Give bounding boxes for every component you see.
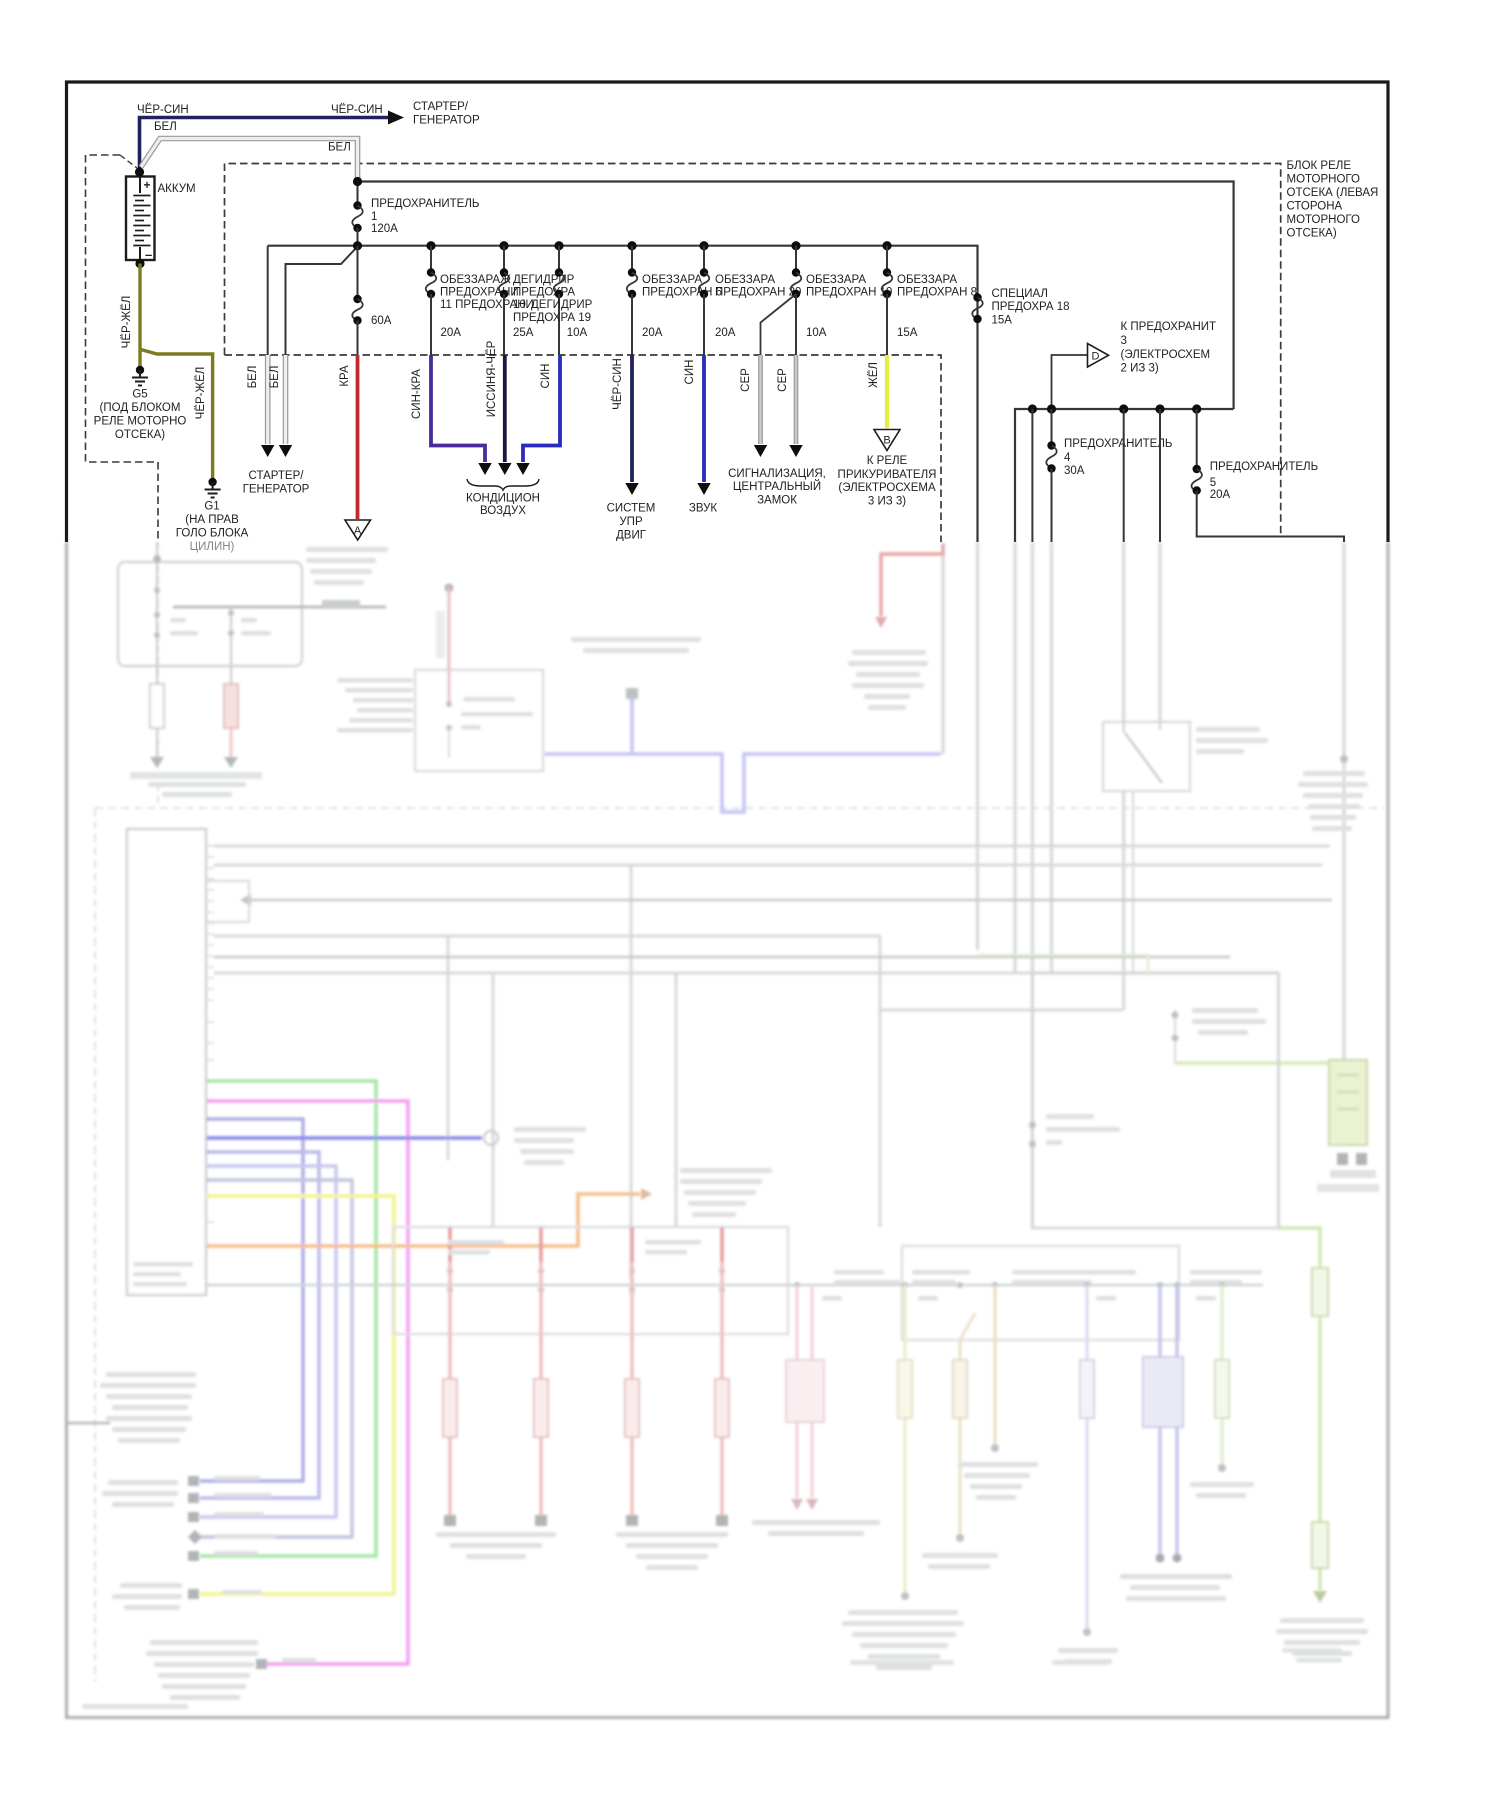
svg-text:АККУМ: АККУМ <box>158 183 196 195</box>
svg-text:ЖЁЛ: ЖЁЛ <box>868 362 880 388</box>
svg-text:10А: 10А <box>806 327 827 339</box>
svg-text:5: 5 <box>1210 477 1216 489</box>
svg-text:2 ИЗ 3): 2 ИЗ 3) <box>1121 363 1159 375</box>
svg-text:РЕЛЕ МОТОРНО: РЕЛЕ МОТОРНО <box>94 416 187 428</box>
svg-text:ПРЕДОХРАН 19: ПРЕДОХРАН 19 <box>806 287 892 299</box>
svg-text:D: D <box>1092 351 1100 363</box>
svg-text:СИГНАЛИЗАЦИЯ,: СИГНАЛИЗАЦИЯ, <box>728 468 826 480</box>
svg-text:ПРЕДОХРА 19: ПРЕДОХРА 19 <box>513 312 591 324</box>
svg-text:G1: G1 <box>204 501 219 513</box>
svg-text:ПРЕДОХРАН 29: ПРЕДОХРАН 29 <box>715 287 801 299</box>
svg-text:ЦЕНТРАЛЬНЫЙ: ЦЕНТРАЛЬНЫЙ <box>733 480 821 493</box>
svg-text:ОТСЕКА): ОТСЕКА) <box>115 429 165 441</box>
svg-text:15А: 15А <box>992 315 1013 327</box>
svg-text:30А: 30А <box>1064 465 1085 477</box>
svg-text:МОТОРНОГО: МОТОРНОГО <box>1287 174 1360 186</box>
svg-text:ДВИГ: ДВИГ <box>616 530 647 542</box>
svg-text:ГЕНЕРАТОР: ГЕНЕРАТОР <box>413 115 480 127</box>
svg-text:3: 3 <box>1121 335 1127 347</box>
svg-text:ОБЕЗЗАРА: ОБЕЗЗАРА <box>806 274 866 286</box>
svg-text:1: 1 <box>371 211 377 223</box>
svg-text:ДЕГИДРИР: ДЕГИДРИР <box>513 274 575 286</box>
svg-text:ЧЁР-СИН: ЧЁР-СИН <box>331 104 383 116</box>
svg-text:ОТСЕКА): ОТСЕКА) <box>1287 228 1337 240</box>
svg-text:(ПОД БЛОКОМ: (ПОД БЛОКОМ <box>100 402 181 414</box>
svg-text:ИССИНЯ-ЧЁР: ИССИНЯ-ЧЁР <box>486 340 498 417</box>
svg-text:20А: 20А <box>1210 489 1231 501</box>
svg-text:БЕЛ: БЕЛ <box>247 366 259 389</box>
svg-text:ПРЕДОХРА: ПРЕДОХРА <box>513 287 575 299</box>
svg-text:ЧЁР-СИН: ЧЁР-СИН <box>137 104 189 116</box>
svg-text:120А: 120А <box>371 223 398 235</box>
svg-text:БЕЛ: БЕЛ <box>269 366 281 389</box>
svg-text:ПРЕДОХРА 18: ПРЕДОХРА 18 <box>992 301 1070 313</box>
svg-text:ЦИЛИН): ЦИЛИН) <box>190 541 235 553</box>
svg-text:ЧЁР-ЖЁЛ: ЧЁР-ЖЁЛ <box>121 296 133 349</box>
svg-text:ДЕГИДРИР: ДЕГИДРИР <box>531 299 593 311</box>
svg-text:ЧЁР-СИН: ЧЁР-СИН <box>612 358 624 410</box>
svg-text:3 ИЗ 3): 3 ИЗ 3) <box>868 496 906 508</box>
svg-text:КОНДИЦИОН: КОНДИЦИОН <box>466 493 540 505</box>
svg-text:ОБЕЗЗАРА: ОБЕЗЗАРА <box>897 274 957 286</box>
svg-text:25А: 25А <box>513 327 534 339</box>
svg-text:ОБЕЗЗАРА: ОБЕЗЗАРА <box>715 274 775 286</box>
svg-text:ОТСЕКА (ЛЕВАЯ: ОТСЕКА (ЛЕВАЯ <box>1287 187 1379 199</box>
svg-text:20А: 20А <box>642 327 663 339</box>
svg-text:ПРЕДОХРАНИТЕЛЬ: ПРЕДОХРАНИТЕЛЬ <box>371 198 479 210</box>
svg-text:10А: 10А <box>567 327 588 339</box>
svg-text:МОТОРНОГО: МОТОРНОГО <box>1287 214 1360 226</box>
svg-text:СТОРОНА: СТОРОНА <box>1287 201 1343 213</box>
svg-text:ГЕНЕРАТОР: ГЕНЕРАТОР <box>243 484 310 496</box>
svg-text:ГОЛО БЛОКА: ГОЛО БЛОКА <box>176 528 249 540</box>
svg-text:СИН-КРА: СИН-КРА <box>411 369 423 419</box>
svg-text:4: 4 <box>1064 452 1071 464</box>
svg-text:СИСТЕМ: СИСТЕМ <box>607 503 656 515</box>
svg-text:ПРЕДОХРАНИТЕЛЬ: ПРЕДОХРАНИТЕЛЬ <box>1064 438 1172 450</box>
svg-text:ЗВУК: ЗВУК <box>689 503 718 515</box>
svg-text:БЕЛ: БЕЛ <box>328 142 351 154</box>
svg-text:20А: 20А <box>715 327 736 339</box>
svg-text:СИН: СИН <box>684 360 696 385</box>
svg-text:К РЕЛЕ: К РЕЛЕ <box>867 455 908 467</box>
svg-text:БЛОК РЕЛЕ: БЛОК РЕЛЕ <box>1287 160 1352 172</box>
svg-text:ПРЕДОХРАН 6: ПРЕДОХРАН 6 <box>642 287 722 299</box>
svg-text:СЕР: СЕР <box>777 368 789 392</box>
svg-text:КРА: КРА <box>339 365 351 387</box>
svg-text:К ПРЕДОХРАНИТ: К ПРЕДОХРАНИТ <box>1121 321 1217 333</box>
svg-text:УПР: УПР <box>619 516 643 528</box>
svg-text:СПЕЦИАЛ: СПЕЦИАЛ <box>992 288 1048 300</box>
svg-text:10: 10 <box>513 299 526 311</box>
svg-text:20А: 20А <box>441 327 462 339</box>
svg-text:А: А <box>354 525 362 537</box>
svg-text:ОБЕЗЗАРАЖ: ОБЕЗЗАРАЖ <box>440 274 511 286</box>
svg-text:15А: 15А <box>897 327 918 339</box>
svg-text:ПРЕДОХРАН 8: ПРЕДОХРАН 8 <box>897 287 977 299</box>
svg-text:ЧЁР-ЖЁЛ: ЧЁР-ЖЁЛ <box>195 367 207 420</box>
svg-text:БЕЛ: БЕЛ <box>154 121 177 133</box>
svg-text:ЗАМОК: ЗАМОК <box>757 495 797 507</box>
svg-text:G5: G5 <box>132 389 147 401</box>
svg-text:В: В <box>883 435 890 447</box>
svg-text:–: – <box>145 247 152 262</box>
svg-text:СЕР: СЕР <box>740 368 752 392</box>
svg-text:60А: 60А <box>371 315 392 327</box>
svg-text:ПРИКУРИВАТЕЛЯ: ПРИКУРИВАТЕЛЯ <box>838 469 937 481</box>
svg-text:СИН: СИН <box>540 364 552 389</box>
svg-text:(ЭЛЕКТРОСХЕМА: (ЭЛЕКТРОСХЕМА <box>838 482 936 494</box>
svg-text:ВОЗДУХ: ВОЗДУХ <box>480 505 526 517</box>
svg-text:ПРЕДОХРАНИТЕЛЬ: ПРЕДОХРАНИТЕЛЬ <box>1210 461 1318 473</box>
svg-text:СТАРТЕР/: СТАРТЕР/ <box>249 470 305 482</box>
svg-text:+: + <box>144 178 151 192</box>
svg-text:(ЭЛЕКТРОСХЕМ: (ЭЛЕКТРОСХЕМ <box>1121 349 1211 361</box>
svg-text:ОБЕЗЗАРА: ОБЕЗЗАРА <box>642 274 702 286</box>
svg-text:СТАРТЕР/: СТАРТЕР/ <box>413 101 469 113</box>
svg-text:(НА ПРАВ: (НА ПРАВ <box>185 514 239 526</box>
